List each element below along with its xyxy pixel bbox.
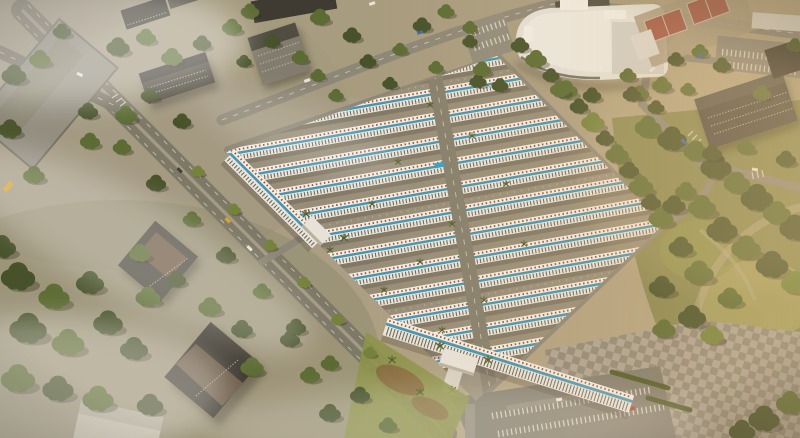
aerial-render-stage: Aerial 3D render of a gated townhouse co… [0,0,800,438]
atmosphere-haze [0,0,800,438]
aerial-render: Aerial 3D render of a gated townhouse co… [0,0,800,438]
